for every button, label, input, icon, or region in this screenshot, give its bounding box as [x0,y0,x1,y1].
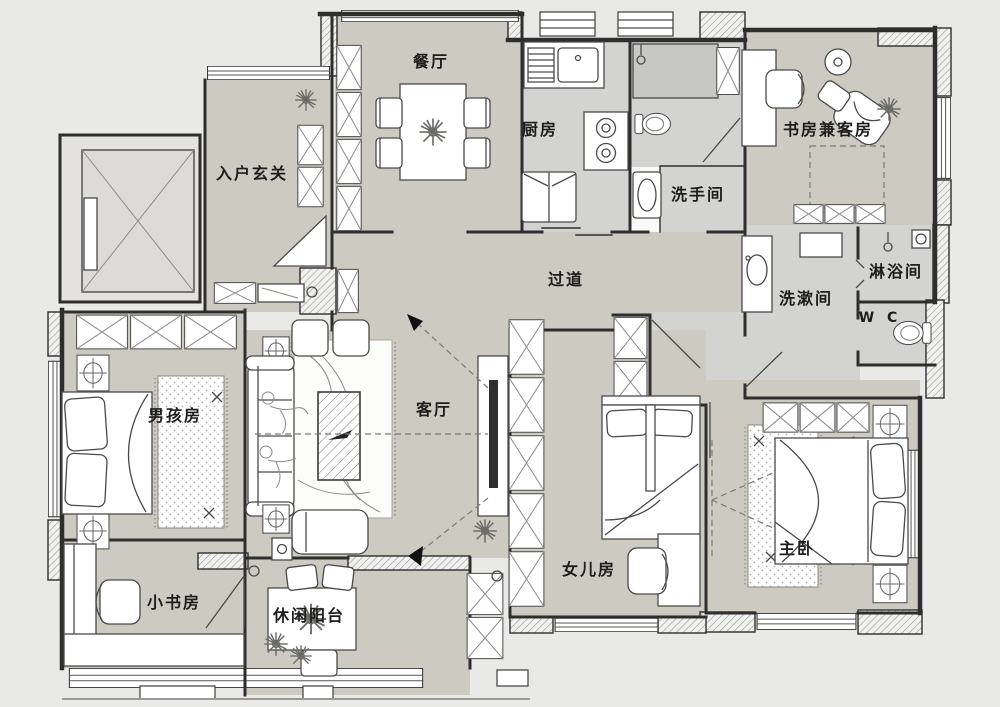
desk-chair [766,70,802,108]
wardrobe-xbox [837,403,869,432]
wardrobe-xbox [131,315,182,349]
wardrobe-xbox [509,378,544,433]
hatched-wall [348,556,470,570]
wardrobe-xbox [337,45,361,89]
room-label-living-room: 客厅 [416,396,452,420]
round-table [825,49,851,75]
hatched-wall [935,180,951,225]
elevator [60,135,200,302]
wardrobe-xbox [509,320,544,375]
room-label-master: 主卧 [779,535,815,559]
window-band [757,613,856,629]
room-label-washroom: 洗手间 [671,181,725,205]
shower-area [633,44,718,98]
wardrobe-xbox [467,573,503,614]
wardrobe-xbox [717,48,740,95]
wardrobe-xbox [825,205,854,224]
wardrobe-xbox [337,186,361,230]
plant-icon [290,645,312,667]
wardrobe-xbox [763,403,798,432]
nightstand [77,355,109,391]
wardrobe-xbox [509,436,544,491]
hatched-wall [935,28,951,96]
hatched-wall [300,268,336,314]
balcony-chair [286,564,319,590]
room-label-wc: W C [859,310,902,326]
hatched-wall [926,300,944,398]
wall-pier [303,686,333,699]
chaise [292,510,368,554]
wardrobe-xbox [856,205,885,224]
window-band [48,361,61,517]
room-label-daughter: 女儿房 [562,556,616,580]
floor-plan: 餐厅 入户玄关 厨房 书房兼客房 洗手间 过道 洗漱间 淋浴间 W C 男孩房 … [0,0,1000,707]
nightstand [873,405,907,443]
room-label-hallway: 过道 [548,266,584,290]
side-table [263,505,289,533]
headboard [602,396,700,405]
wardrobe-xbox [800,403,835,432]
tv [489,380,498,488]
vanity-counter [742,236,772,312]
wardrobe-xbox [337,92,361,136]
kitchen-stove [584,112,628,170]
window-band [936,98,950,179]
wardrobe-xbox [185,315,237,349]
lamp-table [272,538,292,560]
wardrobe-xbox [614,317,647,358]
nightstand [873,565,907,603]
wardrobe-xbox [509,552,544,607]
desk-chair [628,548,666,594]
wardrobe-xbox [298,125,323,164]
bed-runner [646,405,655,491]
room-label-dining: 餐厅 [413,48,449,72]
window-band [208,66,330,79]
hatched-wall [198,553,248,569]
balcony-chair [322,564,355,590]
room-label-shower-room: 淋浴间 [869,258,923,282]
armchair [100,580,140,624]
dish-rack [528,48,554,82]
floor-drain [912,230,930,248]
rooftop-unit [618,12,673,36]
sofa [246,356,294,516]
window-band [555,618,658,631]
table-flower-icon [420,119,447,146]
wall-pier [497,670,528,686]
wardrobe-xbox [77,315,128,349]
cabinet [800,233,842,257]
plant-icon [877,97,900,120]
wardrobe-xbox [794,205,823,224]
room-label-small-study: 小书房 [147,589,201,613]
kitchen-sink [558,48,598,82]
room-label-kitchen: 厨房 [522,116,558,140]
plant-icon [473,519,496,542]
ottoman [333,320,369,356]
hatched-wall [658,617,706,633]
ottoman [292,320,328,356]
shoe-cabinet [214,283,255,304]
hatched-wall [510,617,553,633]
wardrobe-xbox [338,269,359,312]
wardrobe-xbox [509,494,544,549]
plant-icon [295,89,317,111]
room-label-balcony: 休闲阳台 [273,602,345,626]
hatched-wall [700,12,745,40]
balcony-chair [301,650,337,676]
wardrobe-xbox [337,139,361,183]
wall-pier [140,686,215,699]
toilet [635,113,671,135]
plant-icon [264,632,287,655]
room-label-entry: 入户玄关 [216,160,288,184]
wardrobe-xbox [467,617,503,658]
room-label-study-guest: 书房兼客房 [783,116,873,140]
hatched-wall [700,612,755,632]
wardrobe-xbox [298,167,323,206]
rooftop-unit [540,12,595,36]
room-label-wash-area: 洗漱间 [779,285,833,309]
room-label-boys-room: 男孩房 [148,402,202,426]
desk [64,634,244,666]
boys-rug [155,376,227,528]
